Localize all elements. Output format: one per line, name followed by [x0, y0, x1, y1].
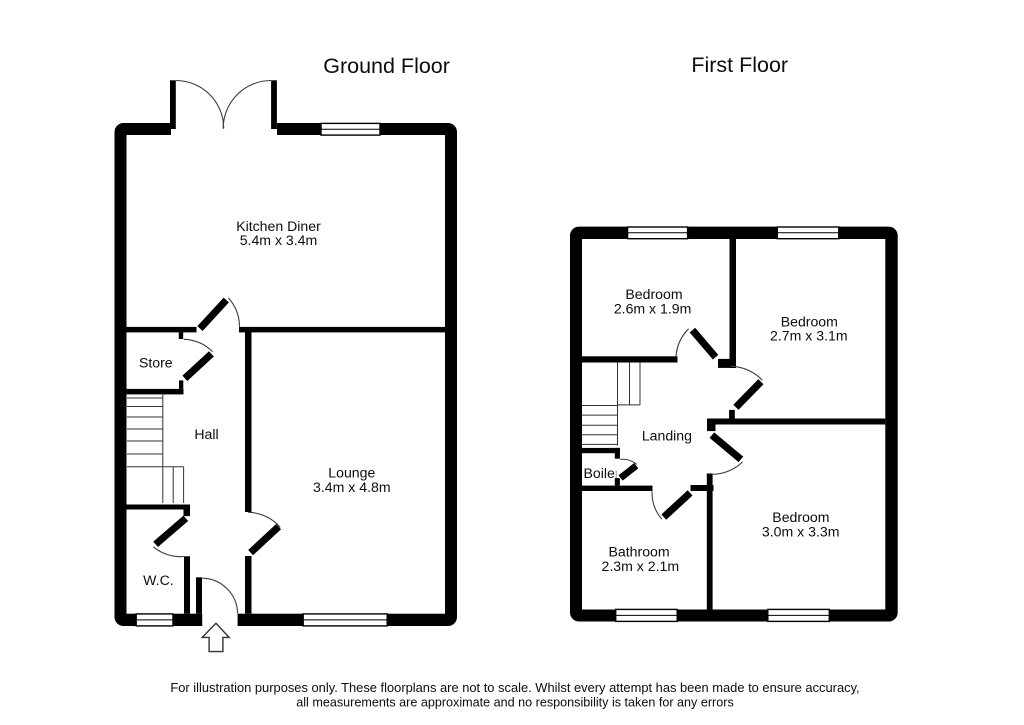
svg-text:Ground Floor: Ground Floor: [323, 54, 450, 78]
svg-text:2.3m x 2.1m: 2.3m x 2.1m: [602, 558, 680, 574]
svg-text:Store: Store: [139, 354, 173, 370]
svg-text:First Floor: First Floor: [691, 53, 788, 77]
svg-text:Boiler: Boiler: [584, 465, 620, 481]
svg-text:Hall: Hall: [194, 426, 218, 442]
svg-text:3.4m x 4.8m: 3.4m x 4.8m: [313, 479, 391, 495]
svg-text:3.0m x 3.3m: 3.0m x 3.3m: [762, 523, 840, 539]
svg-text:5.4m x 3.4m: 5.4m x 3.4m: [240, 232, 318, 248]
svg-text:For illustration purposes only: For illustration purposes only. These fl…: [170, 680, 859, 695]
svg-text:2.6m x 1.9m: 2.6m x 1.9m: [614, 301, 692, 317]
svg-text:all measurements are approxima: all measurements are approximate and no …: [296, 696, 734, 710]
svg-text:Landing: Landing: [642, 428, 692, 444]
svg-text:W.C.: W.C.: [143, 572, 174, 588]
svg-text:2.7m x 3.1m: 2.7m x 3.1m: [770, 327, 848, 343]
